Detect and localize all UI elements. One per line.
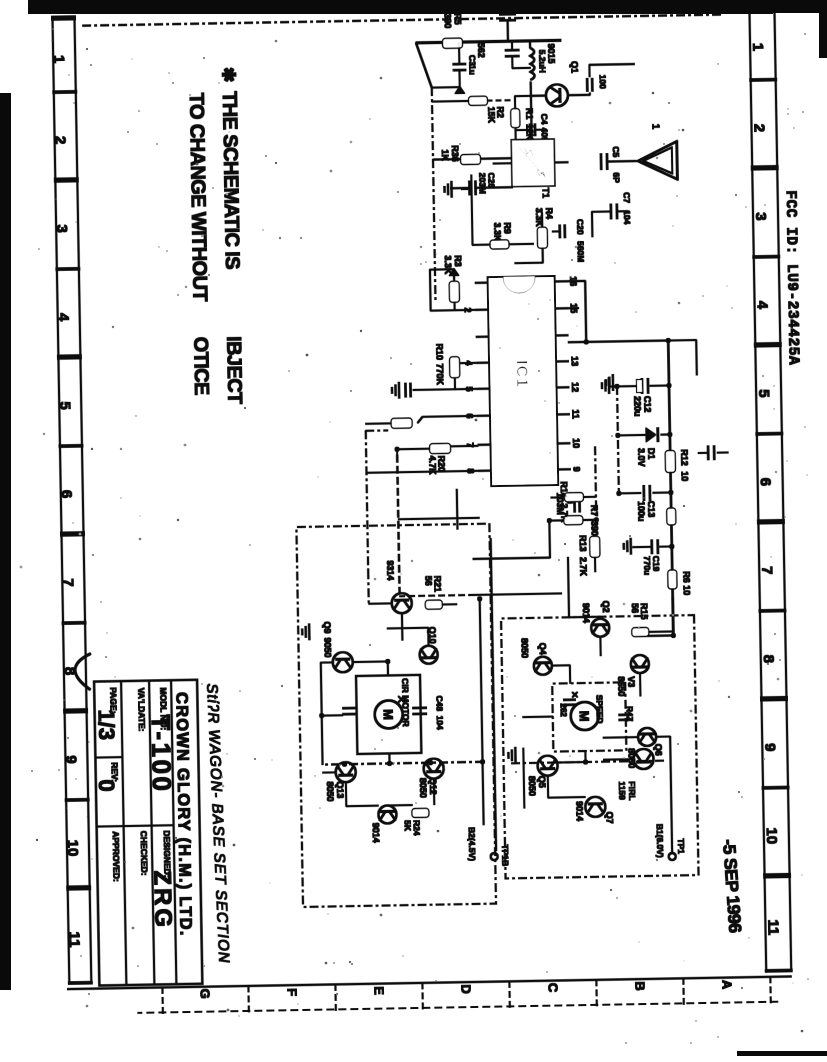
svg-text:3.3K: 3.3K <box>443 255 453 275</box>
svg-text:11: 11 <box>764 919 781 935</box>
svg-text:TP1: TP1 <box>676 838 686 854</box>
svg-text:Q6: Q6 <box>653 744 663 756</box>
svg-text:56: 56 <box>423 576 433 586</box>
svg-text:9314: 9314 <box>385 560 395 580</box>
svg-text:2.7K: 2.7K <box>578 557 588 577</box>
svg-text:C5: C5 <box>611 146 621 157</box>
svg-text:C4: C4 <box>539 114 549 125</box>
svg-text:C13: C13 <box>646 501 656 518</box>
svg-text:5: 5 <box>755 389 772 398</box>
svg-text:10: 10 <box>679 471 689 481</box>
svg-text:100u: 100u <box>636 501 646 522</box>
svg-text:9: 9 <box>62 755 79 764</box>
svg-text:390: 390 <box>442 13 452 28</box>
svg-text:M: M <box>381 709 396 720</box>
svg-text:770u: 770u <box>642 556 652 576</box>
svg-text:6: 6 <box>757 478 774 487</box>
svg-text:T-100: T-100 <box>146 714 177 794</box>
svg-text:8050: 8050 <box>325 781 335 801</box>
svg-text:7: 7 <box>465 442 475 447</box>
svg-text:3: 3 <box>752 212 769 221</box>
svg-text:5.2uH: 5.2uH <box>537 50 547 73</box>
svg-text:Q13: Q13 <box>335 781 345 798</box>
svg-text:2.7K: 2.7K <box>559 503 569 523</box>
svg-text:R3: R3 <box>453 255 463 267</box>
svg-text:1: 1 <box>749 43 766 52</box>
svg-text:Q5: Q5 <box>537 776 547 788</box>
svg-text:F!RL: F!RL <box>627 781 637 801</box>
svg-text:✱: ✱ <box>218 67 238 82</box>
svg-text:IBJECT: IBJECT <box>222 336 245 404</box>
svg-text:770K: 770K <box>435 363 445 385</box>
svg-text:10: 10 <box>64 840 81 857</box>
svg-text:15K: 15K <box>486 106 496 123</box>
svg-text:12: 12 <box>570 382 580 392</box>
svg-text:THE SCHEMATIC IS: THE SCHEMATIC IS <box>218 91 243 269</box>
svg-text:3.0V: 3.0V <box>636 448 646 467</box>
svg-text:SPEED: SPEED <box>594 695 605 724</box>
svg-text:APPROVED:: APPROVED: <box>111 831 122 882</box>
svg-text:104: 104 <box>435 715 445 730</box>
svg-text:10: 10 <box>763 827 780 844</box>
svg-text:262: 262 <box>559 703 568 717</box>
svg-text:8050: 8050 <box>519 638 529 658</box>
svg-text:9: 9 <box>571 467 581 472</box>
svg-text:T1: T1 <box>541 188 551 199</box>
svg-text:15: 15 <box>569 303 579 313</box>
svg-text:R9: R9 <box>502 222 512 234</box>
svg-text:OTICE: OTICE <box>189 336 212 395</box>
svg-text:C20: C20 <box>575 219 585 235</box>
svg-text:11: 11 <box>65 931 82 947</box>
svg-text:IC1: IC1 <box>513 360 530 388</box>
svg-text:8: 8 <box>760 654 777 663</box>
svg-text:TO CHANGE WITHOUT: TO CHANGE WITHOUT <box>185 93 211 302</box>
svg-text:R7: R7 <box>589 505 599 517</box>
svg-text:1/3: 1/3 <box>94 709 120 740</box>
svg-text:C48: C48 <box>434 695 444 711</box>
svg-text:1u: 1u <box>467 65 477 75</box>
svg-text:220u: 220u <box>632 396 642 417</box>
svg-text:2: 2 <box>750 124 767 133</box>
svg-text:B2(4.5V): B2(4.5V) <box>467 827 478 861</box>
svg-text:CIR MOTOR: CIR MOTOR <box>400 678 411 727</box>
svg-text:C12: C12 <box>642 396 652 413</box>
svg-text:Q1: Q1 <box>569 61 579 73</box>
svg-text:R10: R10 <box>434 343 444 360</box>
svg-text:4: 4 <box>754 301 771 310</box>
svg-text:F: F <box>284 988 299 996</box>
svg-text:1: 1 <box>649 124 660 130</box>
svg-text:Q7: Q7 <box>604 812 614 824</box>
svg-text:1159: 1159 <box>617 781 627 800</box>
svg-text:56: 56 <box>630 603 640 613</box>
svg-text:203M: 203M <box>477 173 487 194</box>
svg-text:B: B <box>632 981 647 991</box>
svg-text:G: G <box>197 989 212 999</box>
svg-text:9014: 9014 <box>581 603 591 623</box>
svg-text:104: 104 <box>622 210 632 225</box>
svg-text:A: A <box>719 980 734 990</box>
svg-text:Q4: Q4 <box>537 643 547 655</box>
svg-text:R6: R6 <box>681 571 691 583</box>
svg-text:D1: D1 <box>646 448 656 460</box>
svg-text:3.3K: 3.3K <box>492 222 502 242</box>
svg-text:11: 11 <box>570 409 580 419</box>
svg-text:8050: 8050 <box>527 776 537 796</box>
svg-text:7: 7 <box>59 578 76 587</box>
svg-text:R1: R1 <box>524 108 534 120</box>
svg-text:R14: R14 <box>559 481 569 498</box>
svg-text:E: E <box>371 986 386 995</box>
svg-text:3: 3 <box>53 224 70 233</box>
svg-text:B1(6.0V): B1(6.0V) <box>655 824 666 858</box>
svg-text:8050: 8050 <box>418 778 428 798</box>
svg-text:6: 6 <box>58 490 75 499</box>
svg-text:9014: 9014 <box>574 801 584 821</box>
svg-text:M: M <box>577 710 592 721</box>
svg-text:R12: R12 <box>679 449 689 466</box>
svg-text:6P: 6P <box>611 172 621 183</box>
svg-text:VA'LDATE:: VA'LDATE: <box>136 688 147 732</box>
svg-text:R5: R5 <box>452 13 462 25</box>
svg-text:C7: C7 <box>622 192 632 203</box>
svg-text:R4Z: R4Z <box>625 706 634 721</box>
svg-text:Q9: Q9 <box>322 621 332 633</box>
svg-text:C: C <box>545 983 560 993</box>
svg-text:8050: 8050 <box>626 748 636 768</box>
svg-text:D: D <box>458 984 473 994</box>
svg-text:Q2: Q2 <box>601 601 611 613</box>
svg-text:ZRG: ZRG <box>148 870 176 930</box>
svg-text:0: 0 <box>94 779 119 792</box>
svg-text:13: 13 <box>569 356 579 366</box>
svg-text:9050: 9050 <box>322 637 332 657</box>
svg-text:1: 1 <box>50 55 67 64</box>
svg-text:10: 10 <box>571 438 581 448</box>
svg-text:9014: 9014 <box>371 823 381 843</box>
svg-text:R4: R4 <box>544 207 554 219</box>
svg-text:R13: R13 <box>578 535 588 552</box>
svg-text:560M: 560M <box>575 241 585 262</box>
svg-text:FCC ID: LU9-234425A: FCC ID: LU9-234425A <box>782 190 801 365</box>
svg-text:Q12: Q12 <box>428 778 438 795</box>
svg-text:4: 4 <box>55 313 72 322</box>
svg-text:10: 10 <box>681 585 691 595</box>
svg-text:100: 100 <box>598 75 608 90</box>
svg-text:5: 5 <box>56 401 73 410</box>
svg-text:5K: 5K <box>403 820 413 832</box>
svg-text:V3: V3 <box>626 676 636 687</box>
svg-text:7: 7 <box>758 566 775 575</box>
svg-text:390: 390 <box>589 521 599 536</box>
svg-text:9015: 9015 <box>546 43 556 63</box>
svg-text:2: 2 <box>52 136 69 145</box>
svg-text:CHECKED:: CHECKED: <box>139 831 150 876</box>
svg-text:9: 9 <box>761 743 778 752</box>
